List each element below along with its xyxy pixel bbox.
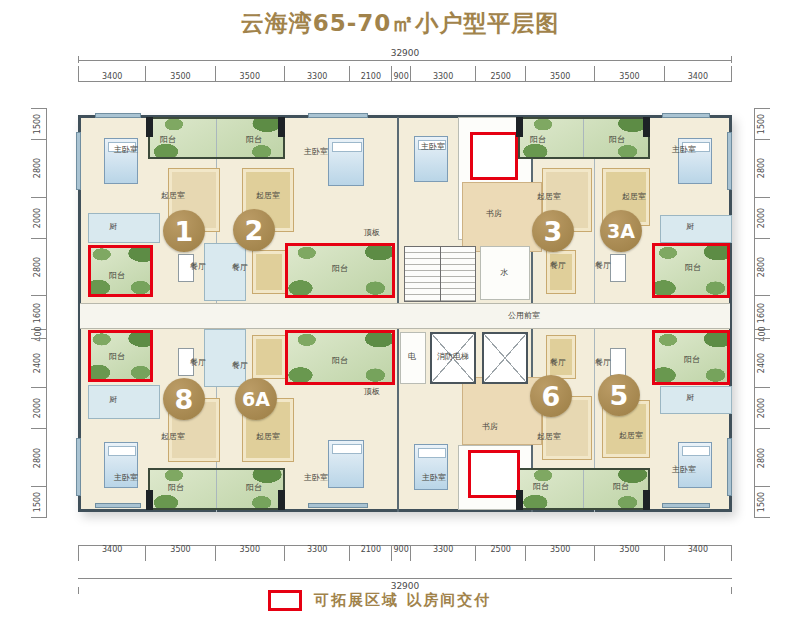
- dim-segment-label: 2400: [755, 338, 770, 387]
- balcony-divider-top-left: [216, 119, 217, 157]
- u8-balcony-label: 阳台: [168, 484, 184, 492]
- u6a-balcony-label: 阳台: [246, 484, 262, 492]
- water-room-label: 水: [500, 269, 508, 277]
- window-right-1: [727, 132, 732, 190]
- u3-dining-rug: [546, 250, 576, 294]
- u3-expandable-area: [470, 132, 518, 180]
- slab-bottom-label: 顶板: [364, 388, 380, 396]
- u1-expandable-balcony-label: 阳台: [109, 272, 125, 280]
- dim-segment-label: 3500: [595, 546, 664, 561]
- u5-master-label: 主卧室: [672, 466, 696, 474]
- dim-segment-label: 3400: [665, 66, 732, 81]
- dim-segment-label: 1500: [755, 108, 770, 139]
- legend-expandable-swatch: [268, 590, 302, 611]
- stairwell: [404, 246, 476, 302]
- kitchen-strip-bottom: [204, 329, 246, 387]
- dim-segment-label: 3500: [216, 66, 285, 81]
- dim-segment-label: 1600: [755, 295, 770, 328]
- unit-badge-6a: 6A: [235, 378, 277, 420]
- window-top-2: [308, 113, 368, 118]
- window-top-1: [95, 113, 141, 118]
- dim-segment-label: 2000: [755, 387, 770, 428]
- dim-row-bottom: 3400350035003300210090033002500350035003…: [78, 545, 732, 561]
- dim-row-top: 3400350035003300210090033002500350035003…: [78, 66, 732, 82]
- dim-segment-label: 3300: [411, 66, 476, 81]
- u5-kitchen-label: 厨: [686, 394, 694, 402]
- dim-segment-label: 2800: [31, 139, 46, 196]
- unit-badge-6: 6: [530, 375, 572, 417]
- fire-elevator-label: 消防电梯: [437, 353, 469, 361]
- wall-accent-8: [643, 490, 650, 510]
- u8-expandable-balcony-label: 阳台: [109, 353, 125, 361]
- unit-badge-2: 2: [233, 209, 275, 251]
- u2-dining-rug: [252, 250, 286, 294]
- u5-living-label: 起居室: [619, 432, 643, 440]
- wall-accent-5: [146, 490, 153, 510]
- dim-segment-label: 2500: [476, 546, 526, 561]
- window-bottom-3: [662, 503, 710, 508]
- balcony-divider-bottom-left: [216, 470, 217, 508]
- u3-study-label: 书房: [486, 210, 502, 218]
- u6-bed: [414, 444, 448, 490]
- dim-segment-label: 400: [31, 329, 46, 338]
- dim-segment-label: 2800: [31, 238, 46, 295]
- u6-master-label: 主卧室: [422, 474, 446, 482]
- window-left-2: [76, 438, 81, 496]
- u3a-dining-label: 餐厅: [595, 262, 611, 270]
- u2-master-label: 主卧室: [304, 148, 328, 156]
- dim-segment-label: 2400: [31, 338, 46, 387]
- u3-master-label: 主卧室: [421, 143, 445, 151]
- dim-segment-label: 2000: [31, 387, 46, 428]
- u5-dining-label: 餐厅: [595, 359, 611, 367]
- dim-segment-label: 3500: [216, 546, 285, 561]
- unit-badge-1: 1: [163, 210, 205, 252]
- u1-kitchen-bath: [88, 213, 160, 243]
- balcony-divider-top-right: [583, 119, 584, 157]
- u3a-living-label: 起居室: [622, 193, 646, 201]
- u6-dining-rug: [546, 335, 576, 379]
- u6-expandable-area: [468, 450, 520, 498]
- page-title: 云海湾65-70㎡小户型平层图: [0, 8, 800, 39]
- window-bottom-1: [95, 503, 141, 508]
- dim-segment-label: 2000: [31, 197, 46, 238]
- dim-segment-label: 3400: [78, 546, 146, 561]
- u6-study-room: [462, 377, 542, 445]
- balcony-divider-bottom-right: [583, 470, 584, 508]
- u6a-master-label: 主卧室: [304, 474, 328, 482]
- wall-accent-7: [516, 490, 523, 510]
- legend: 可拓展区域 以房间交付: [268, 590, 491, 611]
- dim-segment-label: 3500: [146, 546, 215, 561]
- u8-dining-label: 餐厅: [190, 359, 206, 367]
- u8-kitchen-label: 厨: [109, 396, 117, 404]
- dim-segment-label: 3500: [526, 66, 595, 81]
- u1-master-label: 主卧室: [114, 146, 138, 154]
- dim-segment-label: 2800: [31, 428, 46, 485]
- dim-segment-label: 1500: [755, 486, 770, 518]
- u3-balcony-label: 阳台: [530, 136, 546, 144]
- u3a-kitchen: [660, 215, 732, 243]
- window-left-1: [76, 132, 81, 190]
- dim-segment-label: 2100: [350, 66, 392, 81]
- wall-accent-1: [146, 117, 153, 137]
- dim-total-top: 32900: [78, 49, 732, 61]
- dim-col-left: 150028002000280016004002400200028001500: [31, 108, 47, 518]
- u6-study-label: 书房: [482, 423, 498, 431]
- slab-top-label: 顶板: [364, 229, 380, 237]
- unit-badge-3: 3: [532, 210, 574, 252]
- unit-badge-5: 5: [598, 374, 640, 416]
- unit-badge-8: 8: [163, 378, 205, 420]
- u8-living-label: 起居室: [161, 433, 185, 441]
- u1-living-label: 起居室: [161, 192, 185, 200]
- dim-segment-label: 3500: [595, 66, 664, 81]
- u2-balcony-label: 阳台: [246, 136, 262, 144]
- dim-segment-label: 2800: [755, 238, 770, 295]
- dim-segment-label: 400: [755, 329, 770, 338]
- u3-living-label: 起居室: [537, 193, 561, 201]
- u3-dining-label: 餐厅: [550, 262, 566, 270]
- floor-plan-page: 云海湾65-70㎡小户型平层图 32900 340035003500330021…: [0, 0, 800, 621]
- u3a-master-label: 主卧室: [672, 146, 696, 154]
- u3a-expandable-balcony-label: 阳台: [685, 264, 701, 272]
- dim-segment-label: 3400: [78, 66, 146, 81]
- u8-kitchen-bath: [88, 385, 160, 419]
- u1-balcony-label: 阳台: [160, 136, 176, 144]
- wall-accent-2: [278, 117, 285, 137]
- u1-dining-label: 餐厅: [190, 263, 206, 271]
- u2-dining-label: 餐厅: [232, 264, 248, 272]
- u8-master-label: 主卧室: [114, 474, 138, 482]
- shared-lobby-corridor: [80, 303, 730, 329]
- wall-accent-4: [643, 117, 650, 137]
- dim-segment-label: 2000: [755, 197, 770, 238]
- window-bottom-2: [308, 503, 368, 508]
- electric-room-label: 电: [408, 353, 416, 361]
- legend-label: 可拓展区域 以房间交付: [314, 591, 491, 610]
- u3a-kitchen-label: 厨: [686, 223, 694, 231]
- u6a-dining-rug: [252, 335, 286, 379]
- dim-segment-label: 2800: [755, 428, 770, 485]
- dim-segment-label: 2800: [755, 139, 770, 196]
- u3a-dining-table: [610, 254, 626, 282]
- u3a-balcony-label: 阳台: [609, 136, 625, 144]
- dim-segment-label: 1600: [31, 295, 46, 328]
- u5-expandable-balcony-label: 阳台: [684, 356, 700, 364]
- window-right-2: [727, 438, 732, 496]
- elevator-shaft: [482, 332, 528, 384]
- u5-dining-table: [610, 348, 626, 376]
- u6a-bed: [328, 440, 364, 488]
- dim-segment-label: 3500: [146, 66, 215, 81]
- dim-segment-label: 2100: [350, 546, 392, 561]
- u5-balcony-label: 阳台: [613, 483, 629, 491]
- u3-study-room: [462, 182, 542, 252]
- dim-segment-label: 2500: [476, 66, 526, 81]
- u2-living-label: 起居室: [256, 192, 280, 200]
- dim-segment-label: 3300: [285, 66, 350, 81]
- u6a-living-label: 起居室: [256, 433, 280, 441]
- dim-total-top-label: 32900: [78, 48, 732, 58]
- dim-segment-label: 1500: [31, 108, 46, 139]
- dim-segment-label: 1500: [31, 486, 46, 518]
- u6-balcony-label: 阳台: [533, 483, 549, 491]
- u2-bed: [328, 138, 364, 186]
- dim-segment-label: 3300: [285, 546, 350, 561]
- kitchen-strip-top: [204, 243, 246, 301]
- u6a-dining-label: 餐厅: [232, 362, 248, 370]
- shared-lobby-label: 公用前室: [508, 312, 540, 320]
- u5-kitchen: [660, 386, 732, 414]
- wall-accent-3: [516, 117, 523, 137]
- dim-col-right: 150028002000280016004002400200028001500: [754, 108, 770, 518]
- dim-segment-label: 900: [392, 546, 411, 561]
- wall-accent-6: [278, 490, 285, 510]
- u1-kitchen-label: 厨: [109, 223, 117, 231]
- unit-badge-3a: 3A: [600, 210, 642, 252]
- u6a-expandable-balcony-label: 阳台: [332, 357, 348, 365]
- dim-segment-label: 3400: [665, 546, 732, 561]
- window-top-3: [662, 113, 710, 118]
- u6-dining-label: 餐厅: [550, 359, 566, 367]
- dim-segment-label: 3300: [411, 546, 476, 561]
- u2-expandable-balcony-label: 阳台: [332, 265, 348, 273]
- dim-segment-label: 3500: [526, 546, 595, 561]
- dim-segment-label: 900: [392, 66, 411, 81]
- u6-living-label: 起居室: [537, 433, 561, 441]
